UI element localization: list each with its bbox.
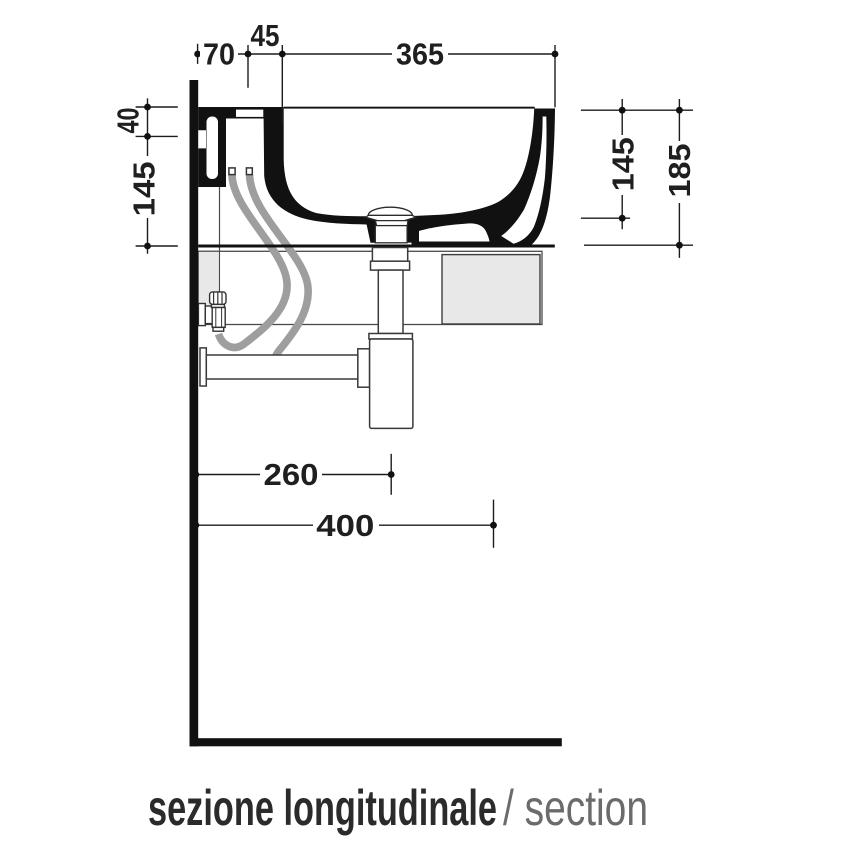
svg-text:sezione longitudinale: sezione longitudinale: [148, 780, 497, 836]
svg-text:70: 70: [203, 37, 235, 72]
svg-text:45: 45: [251, 18, 280, 53]
svg-text:145: 145: [127, 161, 162, 216]
svg-text:145: 145: [606, 137, 641, 191]
svg-text:40: 40: [111, 108, 146, 134]
svg-text:400: 400: [316, 508, 374, 543]
svg-text:/ section: / section: [503, 780, 648, 836]
svg-text:365: 365: [396, 37, 444, 72]
svg-text:185: 185: [662, 144, 697, 198]
svg-text:260: 260: [264, 457, 319, 492]
